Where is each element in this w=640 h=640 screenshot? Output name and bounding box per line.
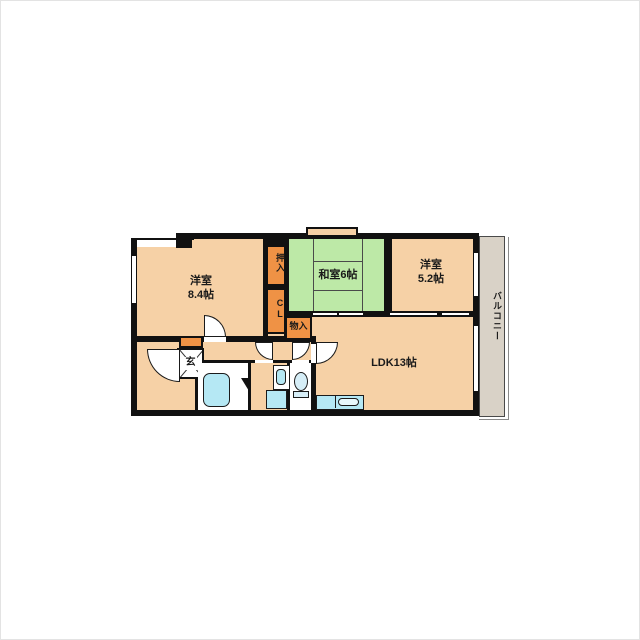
kitchen-sink (338, 398, 359, 406)
kitchen-counter (316, 395, 364, 410)
wall-step-block (176, 233, 192, 248)
vanity-basin (276, 369, 286, 385)
western2-size: 5.2帖 (401, 273, 461, 287)
monoire-label: 物入 (286, 321, 311, 332)
tatami-line-bottom (313, 290, 362, 291)
wall-bottom (131, 410, 479, 416)
bay-protrusion (306, 227, 358, 237)
western1-name: 洋室 (161, 275, 241, 289)
wall-notch (137, 240, 176, 247)
western1-label: 洋室 8.4帖 (161, 275, 241, 303)
floorplan-canvas: バルコニー 玄 (0, 0, 640, 640)
cl-label: CL (267, 298, 285, 320)
slider-washitsu-ldk-2 (339, 312, 363, 316)
bathtub (203, 373, 230, 407)
washitsu-label: 和室6帖 (307, 269, 369, 283)
washer-pan (266, 390, 287, 409)
doorway-washroom (255, 360, 273, 363)
toilet-bowl (294, 372, 308, 391)
window-right-ldk (473, 326, 479, 391)
tatami-line-top (313, 261, 362, 262)
western2-name: 洋室 (401, 259, 461, 273)
oshiire-label: 押入 (267, 253, 285, 273)
western2-label: 洋室 5.2帖 (401, 259, 461, 287)
window-left (131, 256, 137, 303)
western1-size: 8.4帖 (161, 289, 241, 303)
bath-door-mark (241, 378, 249, 391)
window-western2-bottom-1 (390, 312, 437, 316)
kitchen-counter-divider (335, 396, 336, 408)
toilet-base (293, 391, 309, 398)
vanity-sink (273, 365, 290, 390)
slider-washitsu-ldk-1 (313, 312, 337, 316)
window-right-western2 (473, 253, 479, 296)
genkan-label: 玄 (185, 357, 197, 370)
ldk-label: LDK13帖 (354, 357, 434, 371)
window-western2-bottom-2 (442, 312, 469, 316)
wall-washitsu-western2 (384, 239, 392, 311)
balcony-label: バルコニー (484, 291, 502, 341)
shoe-cabinet (179, 336, 203, 348)
